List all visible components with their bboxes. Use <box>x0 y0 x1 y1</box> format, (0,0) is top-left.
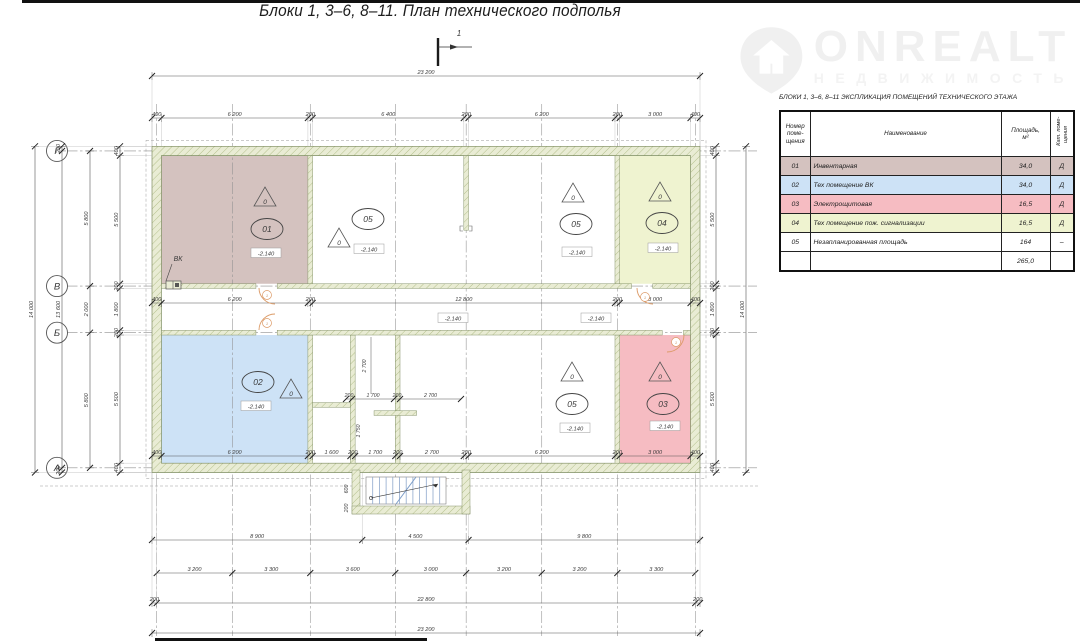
room-area: 34,0 <box>1001 157 1050 176</box>
svg-text:-2.140: -2.140 <box>361 247 378 253</box>
svg-text:2 700: 2 700 <box>424 450 440 456</box>
exterior-stair <box>352 470 470 514</box>
section-arrow <box>450 44 458 49</box>
svg-text:200: 200 <box>344 393 354 399</box>
svg-text:600: 600 <box>344 485 350 494</box>
svg-text:200: 200 <box>347 450 358 456</box>
svg-text:1 800: 1 800 <box>710 302 716 317</box>
svg-text:200: 200 <box>710 281 716 292</box>
svg-text:3 000: 3 000 <box>648 450 663 456</box>
legend-header-row: Номерпоме-щенияНаименованиеПлощадь,м²Кат… <box>780 111 1074 157</box>
svg-text:4 500: 4 500 <box>408 534 423 540</box>
svg-text:1 700: 1 700 <box>367 393 380 399</box>
room-name: Тех помещение ВК <box>810 176 1001 195</box>
room-01-area <box>161 156 307 284</box>
svg-text:-2.140: -2.140 <box>567 426 584 432</box>
room-04-area <box>620 156 691 284</box>
room-02-area <box>161 335 307 463</box>
svg-text:9 800: 9 800 <box>577 534 592 540</box>
room-number: 04 <box>780 214 810 233</box>
svg-text:200: 200 <box>392 450 403 456</box>
svg-text:400: 400 <box>152 112 162 118</box>
legend-row-01: 01Инвентарная34,0Д <box>780 157 1074 176</box>
rooms <box>161 156 690 464</box>
svg-text:200: 200 <box>305 297 316 303</box>
room-category: Д <box>1050 195 1074 214</box>
svg-text:200: 200 <box>344 504 350 514</box>
room-legend: БЛОКИ 1, 3–6, 8–11 ЭКСПЛИКАЦИЯ ПОМЕЩЕНИЙ… <box>779 94 1075 272</box>
room-area: 16,5 <box>1001 195 1050 214</box>
svg-text:0: 0 <box>571 195 575 202</box>
svg-text:0: 0 <box>289 391 293 398</box>
svg-text:2 000: 2 000 <box>84 302 90 318</box>
legend-row-04: 04Тех помещение пож. сигнализации16,5Д <box>780 214 1074 233</box>
svg-text:05: 05 <box>363 214 373 224</box>
svg-text:-2.140: -2.140 <box>258 251 275 257</box>
legend-title: БЛОКИ 1, 3–6, 8–11 ЭКСПЛИКАЦИЯ ПОМЕЩЕНИЙ… <box>779 94 1075 101</box>
svg-text:-2.140: -2.140 <box>655 246 672 252</box>
svg-text:13 600: 13 600 <box>56 300 62 318</box>
room-number: 02 <box>780 176 810 195</box>
svg-text:05: 05 <box>571 219 581 229</box>
svg-text:1: 1 <box>266 321 268 326</box>
svg-text:3 200: 3 200 <box>573 567 588 573</box>
svg-text:6 200: 6 200 <box>228 450 243 456</box>
svg-text:400: 400 <box>152 297 162 303</box>
svg-text:-2.140: -2.140 <box>445 316 462 322</box>
svg-text:3 000: 3 000 <box>648 297 663 303</box>
room-name: Электрощитовая <box>810 195 1001 214</box>
svg-text:3 300: 3 300 <box>264 567 279 573</box>
legend-total-row: 265,0 <box>780 252 1074 272</box>
svg-text:-2.140: -2.140 <box>657 424 674 430</box>
svg-text:5 500: 5 500 <box>114 391 120 406</box>
svg-text:6 200: 6 200 <box>535 450 550 456</box>
svg-text:02: 02 <box>253 377 263 387</box>
svg-text:3 000: 3 000 <box>424 567 439 573</box>
svg-text:3 200: 3 200 <box>188 567 203 573</box>
legend-body: Номерпоме-щенияНаименованиеПлощадь,м²Кат… <box>780 111 1074 271</box>
svg-text:22 800: 22 800 <box>416 597 435 603</box>
room-number: 03 <box>780 195 810 214</box>
svg-text:0: 0 <box>570 374 574 381</box>
svg-text:400: 400 <box>710 462 716 472</box>
svg-text:200: 200 <box>460 112 471 118</box>
room-category: Д <box>1050 157 1074 176</box>
svg-text:200: 200 <box>392 393 402 399</box>
svg-text:200: 200 <box>305 112 316 118</box>
svg-text:400: 400 <box>114 145 120 155</box>
svg-text:3 000: 3 000 <box>648 112 663 118</box>
svg-text:14 000: 14 000 <box>29 300 35 318</box>
svg-text:-2.140: -2.140 <box>248 404 265 410</box>
svg-text:1: 1 <box>266 293 268 298</box>
svg-text:05: 05 <box>567 399 577 409</box>
svg-text:200: 200 <box>114 281 120 292</box>
svg-text:6 400: 6 400 <box>381 112 396 118</box>
svg-text:400: 400 <box>691 112 701 118</box>
svg-text:-2.140: -2.140 <box>569 250 586 256</box>
svg-text:200: 200 <box>460 450 471 456</box>
svg-text:ВК: ВК <box>174 256 184 263</box>
svg-text:1 750: 1 750 <box>356 424 362 437</box>
svg-text:1: 1 <box>644 295 646 300</box>
svg-text:5 500: 5 500 <box>710 391 716 406</box>
svg-text:200: 200 <box>710 327 716 338</box>
svg-text:200: 200 <box>114 327 120 338</box>
section-mark: 1 <box>438 29 472 66</box>
room-category: Д <box>1050 176 1074 195</box>
room-number: 01 <box>780 157 810 176</box>
svg-text:12 800: 12 800 <box>455 297 473 303</box>
svg-text:200: 200 <box>612 112 623 118</box>
svg-text:0: 0 <box>337 240 341 247</box>
svg-text:400: 400 <box>691 450 701 456</box>
room-area: 16,5 <box>1001 214 1050 233</box>
svg-text:23 200: 23 200 <box>416 627 435 633</box>
svg-text:400: 400 <box>691 297 701 303</box>
svg-text:6 200: 6 200 <box>535 112 550 118</box>
svg-text:5 800: 5 800 <box>84 211 90 226</box>
room-number: 05 <box>780 233 810 252</box>
svg-text:0: 0 <box>263 199 267 206</box>
col-area: Площадь,м² <box>1001 111 1050 157</box>
svg-text:200: 200 <box>612 297 623 303</box>
svg-text:-2.140: -2.140 <box>588 316 605 322</box>
svg-text:04: 04 <box>657 218 667 228</box>
svg-text:6 200: 6 200 <box>228 112 243 118</box>
legend-row-02: 02Тех помещение ВК34,0Д <box>780 176 1074 195</box>
svg-text:0: 0 <box>658 194 662 201</box>
svg-text:200: 200 <box>149 597 160 603</box>
svg-text:8 900: 8 900 <box>250 534 265 540</box>
room-name: Незапланированная площадь <box>810 233 1001 252</box>
svg-text:2 700: 2 700 <box>362 359 368 373</box>
svg-text:14 000: 14 000 <box>740 300 746 318</box>
room-category: Д <box>1050 214 1074 233</box>
svg-text:5 800: 5 800 <box>84 392 90 407</box>
legend-row-05: 05Незапланированная площадь164– <box>780 233 1074 252</box>
svg-text:3 600: 3 600 <box>346 567 361 573</box>
room-03-area <box>620 335 691 463</box>
svg-text:5 500: 5 500 <box>710 212 716 227</box>
svg-text:01: 01 <box>262 224 272 234</box>
svg-text:Б: Б <box>54 328 60 339</box>
total-area: 265,0 <box>1001 252 1050 272</box>
svg-text:6 200: 6 200 <box>228 297 243 303</box>
svg-text:1: 1 <box>457 29 461 38</box>
svg-text:1 600: 1 600 <box>325 450 340 456</box>
svg-text:5 500: 5 500 <box>114 212 120 227</box>
room-name: Инвентарная <box>810 157 1001 176</box>
svg-text:400: 400 <box>152 450 162 456</box>
svg-text:0: 0 <box>658 374 662 381</box>
svg-text:3 200: 3 200 <box>497 567 512 573</box>
room-category: – <box>1050 233 1074 252</box>
col-name: Наименование <box>810 111 1001 157</box>
svg-text:400: 400 <box>710 145 716 155</box>
room-legend-table: Номерпоме-щенияНаименованиеПлощадь,м²Кат… <box>779 110 1075 272</box>
drawing-sheet: { "title": "Блоки 1, 3–6, 8–11. План тех… <box>0 0 1080 641</box>
svg-text:1 800: 1 800 <box>114 302 120 317</box>
svg-text:200: 200 <box>56 465 62 476</box>
svg-text:200: 200 <box>692 597 703 603</box>
svg-text:В: В <box>54 281 61 292</box>
col-category: Кат. поме-щения <box>1050 111 1074 157</box>
svg-text:200: 200 <box>56 143 62 154</box>
svg-text:400: 400 <box>114 462 120 472</box>
svg-text:23 200: 23 200 <box>416 70 435 76</box>
room-area: 164 <box>1001 233 1050 252</box>
svg-text:1 700: 1 700 <box>368 450 383 456</box>
legend-row-03: 03Электрощитовая16,5Д <box>780 195 1074 214</box>
svg-text:200: 200 <box>305 450 316 456</box>
svg-text:2 700: 2 700 <box>423 393 437 399</box>
svg-text:200: 200 <box>612 450 623 456</box>
room-area: 34,0 <box>1001 176 1050 195</box>
room-name: Тех помещение пож. сигнализации <box>810 214 1001 233</box>
svg-text:03: 03 <box>658 399 668 409</box>
svg-text:1: 1 <box>675 340 677 345</box>
col-number: Номерпоме-щения <box>780 111 810 157</box>
svg-text:3 300: 3 300 <box>649 567 664 573</box>
